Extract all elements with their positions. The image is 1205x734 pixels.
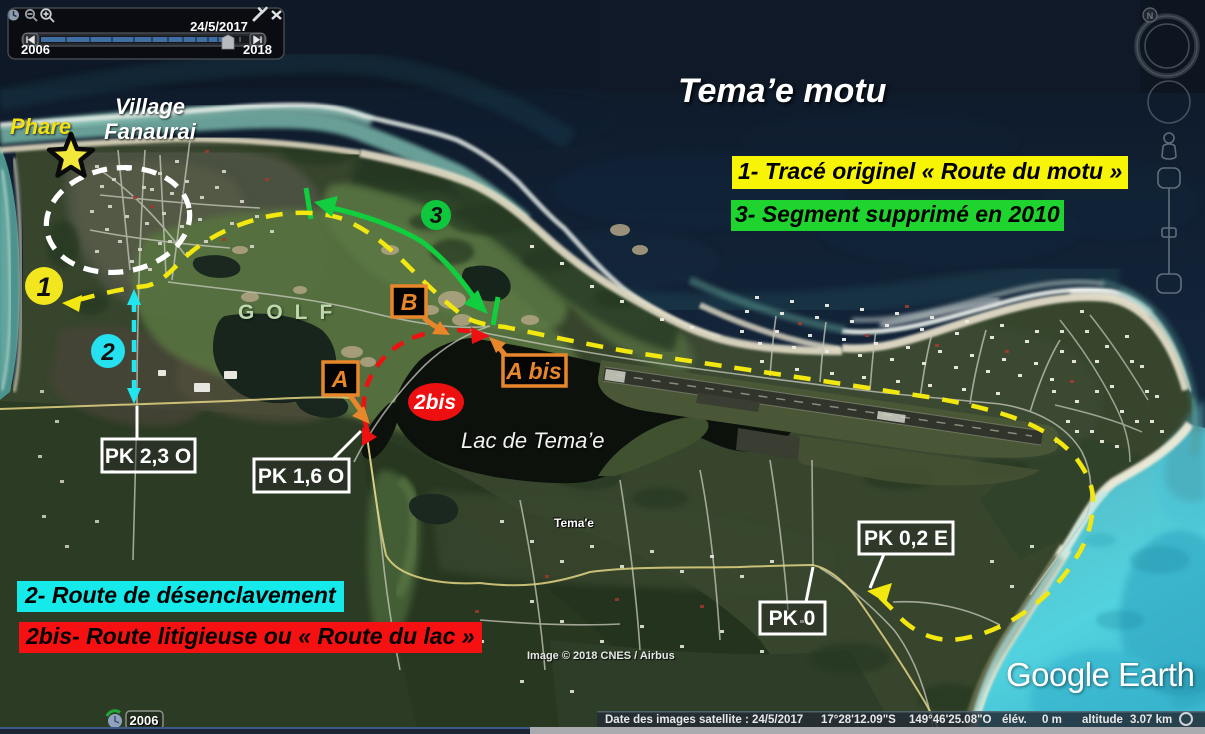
svg-text:24/5/2017: 24/5/2017	[190, 19, 248, 34]
svg-text:N: N	[1147, 11, 1154, 21]
svg-text:149°46'25.08"O: 149°46'25.08"O	[909, 714, 992, 726]
svg-text:PK 2,3 O: PK 2,3 O	[105, 445, 191, 468]
svg-text:B: B	[401, 289, 418, 315]
svg-text:0 m: 0 m	[1042, 714, 1062, 726]
svg-text:1: 1	[36, 272, 51, 302]
svg-text:Date des images satellite : 24: Date des images satellite : 24/5/2017	[605, 714, 803, 726]
svg-text:3: 3	[430, 202, 443, 228]
svg-text:A: A	[331, 366, 349, 392]
svg-text:2bis: 2bis	[413, 391, 456, 414]
svg-text:2018: 2018	[243, 42, 272, 57]
svg-text:altitude: altitude	[1082, 714, 1123, 726]
svg-text:17°28'12.09"S: 17°28'12.09"S	[821, 714, 896, 726]
svg-text:PK 1,6 O: PK 1,6 O	[258, 465, 344, 488]
svg-text:A bis: A bis	[505, 358, 561, 384]
svg-text:PK 0: PK 0	[769, 607, 816, 630]
svg-text:3.07 km: 3.07 km	[1130, 714, 1172, 726]
svg-text:2: 2	[100, 339, 115, 366]
svg-text:2006: 2006	[130, 713, 159, 728]
svg-text:2006: 2006	[21, 42, 50, 57]
svg-text:élév.: élév.	[1002, 714, 1027, 726]
svg-text:PK 0,2 E: PK 0,2 E	[864, 527, 948, 550]
